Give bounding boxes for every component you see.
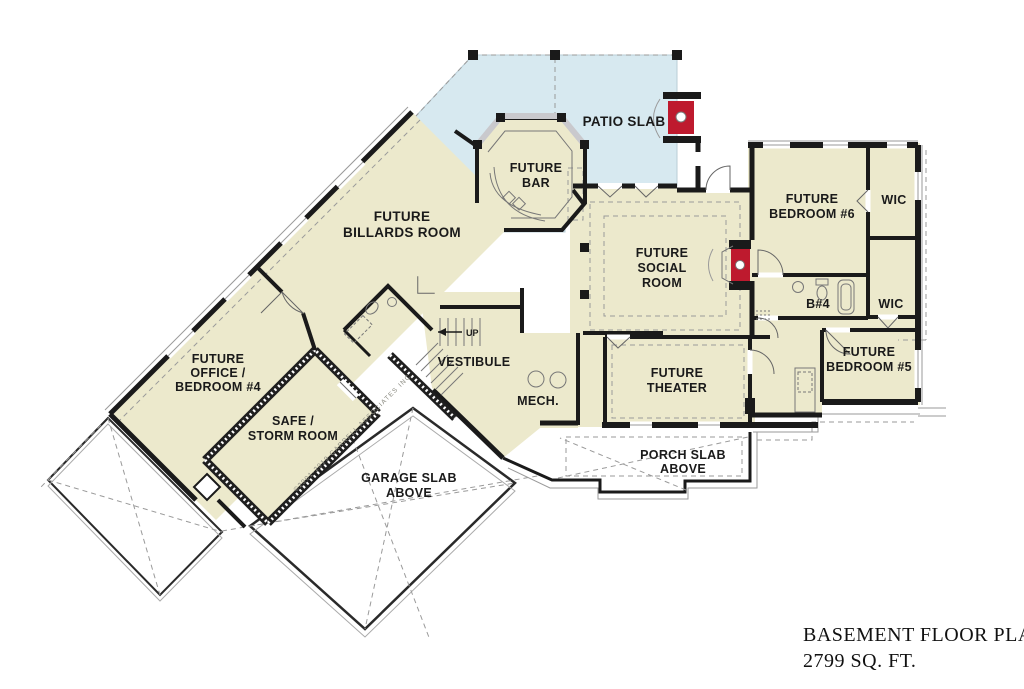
label-theater-1: FUTURE: [651, 366, 704, 380]
label-porch-2: ABOVE: [660, 462, 706, 476]
label-bedroom6-1: FUTURE: [786, 192, 839, 206]
plan-title-line1: BASEMENT FLOOR PLAN: [803, 624, 1024, 646]
label-theater-2: THEATER: [647, 381, 707, 395]
label-bath4: B#4: [806, 297, 830, 311]
basement-floor-plan: ©2001-2019 GARRELL ASSOCIATES INC. PATIO…: [0, 0, 1024, 689]
patio-column: [468, 50, 478, 60]
label-vestibule: VESTIBULE: [438, 355, 511, 369]
label-wic2: WIC: [878, 297, 903, 311]
label-wic1: WIC: [881, 193, 906, 207]
label-bedroom6-2: BEDROOM #6: [769, 207, 855, 221]
plan-title: BASEMENT FLOOR PLAN 2799 SQ. FT.: [803, 624, 1024, 672]
floor-plan-drawing: ©2001-2019 GARRELL ASSOCIATES INC. PATIO…: [0, 0, 1024, 689]
label-social-1: FUTURE: [636, 246, 689, 260]
label-bedroom5-1: FUTURE: [843, 345, 896, 359]
label-billards-1: FUTURE: [374, 209, 431, 224]
label-mech: MECH.: [517, 394, 559, 408]
label-social-2: SOCIAL: [637, 261, 686, 275]
patio-column: [550, 50, 560, 60]
label-porch-1: PORCH SLAB: [640, 448, 726, 462]
label-safe-2: STORM ROOM: [248, 429, 338, 443]
label-up: UP: [466, 328, 479, 338]
label-social-3: ROOM: [642, 276, 682, 290]
label-bedroom5-2: BEDROOM #5: [826, 360, 912, 374]
label-garage-1: GARAGE SLAB: [361, 471, 457, 485]
label-patio: PATIO SLAB: [583, 114, 666, 129]
label-office-1: FUTURE: [192, 352, 245, 366]
label-bar-2: BAR: [522, 176, 550, 190]
label-billards-2: BILLARDS ROOM: [343, 225, 461, 240]
patio-column: [672, 50, 682, 60]
label-office-2: OFFICE /: [190, 366, 245, 380]
label-garage-2: ABOVE: [386, 486, 432, 500]
label-safe-1: SAFE /: [272, 414, 314, 428]
label-bar-1: FUTURE: [510, 161, 563, 175]
label-office-3: BEDROOM #4: [175, 380, 261, 394]
plan-title-line2: 2799 SQ. FT.: [803, 650, 916, 672]
